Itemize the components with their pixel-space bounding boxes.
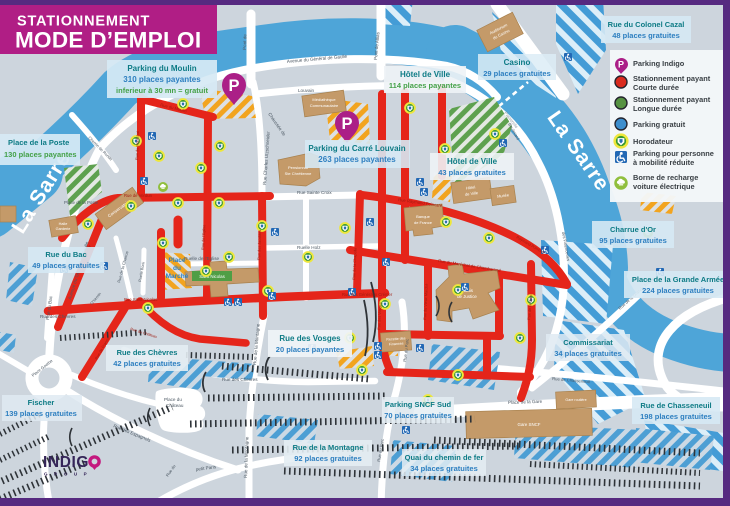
svg-text:139 places gratuites: 139 places gratuites bbox=[5, 409, 77, 418]
svg-text:Communautaire: Communautaire bbox=[310, 103, 339, 108]
svg-text:224 places gratuites: 224 places gratuites bbox=[642, 286, 714, 295]
svg-text:Place: Place bbox=[169, 257, 186, 264]
svg-text:Parking pour personne: Parking pour personne bbox=[633, 149, 714, 158]
svg-text:Casino: Casino bbox=[504, 58, 531, 67]
svg-text:Banque: Banque bbox=[416, 214, 431, 219]
svg-text:Charrue d'Or: Charrue d'Or bbox=[610, 225, 656, 234]
svg-text:Garderie: Garderie bbox=[56, 227, 71, 231]
svg-text:Château: Château bbox=[166, 403, 184, 408]
svg-text:Place de la Poste: Place de la Poste bbox=[8, 138, 69, 147]
svg-text:Stationnement payant: Stationnement payant bbox=[633, 95, 711, 104]
svg-text:Gare routière: Gare routière bbox=[565, 398, 586, 402]
svg-text:29 places gratuites: 29 places gratuites bbox=[483, 69, 551, 78]
svg-text:Horodateur: Horodateur bbox=[633, 137, 673, 146]
svg-text:Rue de la Montagne: Rue de la Montagne bbox=[293, 443, 364, 452]
svg-text:Ruelle Holz: Ruelle Holz bbox=[297, 245, 321, 250]
svg-text:Courte durée: Courte durée bbox=[633, 83, 679, 92]
svg-text:MODE D’EMPLOI: MODE D’EMPLOI bbox=[15, 28, 201, 53]
svg-text:114 places payantes: 114 places payantes bbox=[389, 81, 461, 90]
svg-text:Ruelle de l'Eglise: Ruelle de l'Eglise bbox=[184, 256, 220, 261]
svg-text:Parking Indigo: Parking Indigo bbox=[633, 59, 685, 68]
svg-text:Hôtel de Ville: Hôtel de Ville bbox=[400, 70, 451, 79]
svg-text:130 places payantes: 130 places payantes bbox=[4, 150, 77, 159]
svg-text:Rue des Chevres: Rue des Chevres bbox=[40, 314, 76, 319]
svg-text:à mobilité réduite: à mobilité réduite bbox=[633, 158, 694, 167]
svg-text:Médiathèque: Médiathèque bbox=[312, 97, 336, 102]
svg-text:Fischer: Fischer bbox=[28, 398, 55, 407]
svg-text:Parking SNCF Sud: Parking SNCF Sud bbox=[385, 400, 452, 409]
svg-text:du: du bbox=[173, 265, 181, 272]
svg-text:92 places gratuites: 92 places gratuites bbox=[294, 454, 362, 463]
svg-text:inferieur à 30 mn = gratuit: inferieur à 30 mn = gratuit bbox=[116, 86, 208, 95]
svg-text:49 places gratuites: 49 places gratuites bbox=[32, 261, 100, 270]
svg-text:Rue Saint Nicolas: Rue Saint Nicolas bbox=[124, 297, 157, 302]
svg-text:Longue durée: Longue durée bbox=[633, 104, 682, 113]
svg-text:Rue des Vosges: Rue des Vosges bbox=[279, 334, 341, 343]
svg-text:Pont de: Pont de bbox=[242, 34, 248, 50]
svg-text:voiture électrique: voiture électrique bbox=[633, 182, 695, 191]
svg-text:Rue de Verdun: Rue de Verdun bbox=[124, 193, 153, 198]
svg-text:Rue de Chasseneuil: Rue de Chasseneuil bbox=[640, 401, 711, 410]
svg-text:Ste Chrétienne: Ste Chrétienne bbox=[285, 171, 312, 176]
svg-text:Place de la Grande Armée: Place de la Grande Armée bbox=[632, 275, 724, 284]
svg-text:Hôtel de Ville: Hôtel de Ville bbox=[447, 157, 498, 166]
svg-text:Rue du Bac: Rue du Bac bbox=[45, 250, 86, 259]
svg-text:Louvain: Louvain bbox=[298, 88, 315, 93]
svg-text:198 places gratuites: 198 places gratuites bbox=[640, 412, 712, 421]
svg-text:42 places gratuites: 42 places gratuites bbox=[113, 359, 181, 368]
svg-text:Borne de recharge: Borne de recharge bbox=[633, 173, 698, 182]
svg-text:Parking gratuit: Parking gratuit bbox=[633, 120, 686, 129]
svg-text:Stationnement payant: Stationnement payant bbox=[633, 74, 711, 83]
svg-text:INDIG: INDIG bbox=[43, 454, 89, 471]
svg-text:Place de la Poste: Place de la Poste bbox=[64, 200, 99, 205]
svg-text:48 places gratuites: 48 places gratuites bbox=[612, 31, 680, 40]
svg-text:Quai du chemin de fer: Quai du chemin de fer bbox=[405, 453, 484, 462]
svg-text:Marché: Marché bbox=[166, 273, 189, 280]
svg-text:Rue des Chevres: Rue des Chevres bbox=[222, 377, 258, 382]
svg-text:70 places gratuites: 70 places gratuites bbox=[384, 411, 452, 420]
svg-text:Rue du Colonel Cazal: Rue du Colonel Cazal bbox=[608, 20, 685, 29]
svg-text:34 places gratuites: 34 places gratuites bbox=[410, 464, 478, 473]
svg-text:310 places payantes: 310 places payantes bbox=[123, 75, 201, 84]
svg-text:Parking du Carré Louvain: Parking du Carré Louvain bbox=[308, 144, 405, 153]
svg-text:G R O U P: G R O U P bbox=[44, 472, 89, 477]
svg-text:Place du: Place du bbox=[164, 397, 182, 402]
svg-text:P: P bbox=[618, 60, 624, 70]
svg-text:34 places gratuites: 34 places gratuites bbox=[554, 349, 622, 358]
svg-text:263 places payantes: 263 places payantes bbox=[318, 155, 396, 164]
svg-text:95 places gratuites: 95 places gratuites bbox=[599, 236, 667, 245]
svg-text:Rue Sainte Croix: Rue Sainte Croix bbox=[297, 190, 332, 195]
svg-text:de France: de France bbox=[414, 220, 433, 225]
svg-text:Halle: Halle bbox=[59, 222, 68, 226]
svg-text:Rue des Généraux Crémer: Rue des Généraux Crémer bbox=[342, 292, 393, 297]
svg-text:Commissariat: Commissariat bbox=[563, 338, 613, 347]
svg-text:Parking du Moulin: Parking du Moulin bbox=[127, 64, 196, 73]
svg-text:20 places payantes: 20 places payantes bbox=[276, 345, 344, 354]
svg-text:Rue des Chèvres: Rue des Chèvres bbox=[117, 348, 178, 357]
svg-text:43 places gratuites: 43 places gratuites bbox=[438, 168, 506, 177]
svg-text:Gare SNCF: Gare SNCF bbox=[518, 422, 541, 427]
